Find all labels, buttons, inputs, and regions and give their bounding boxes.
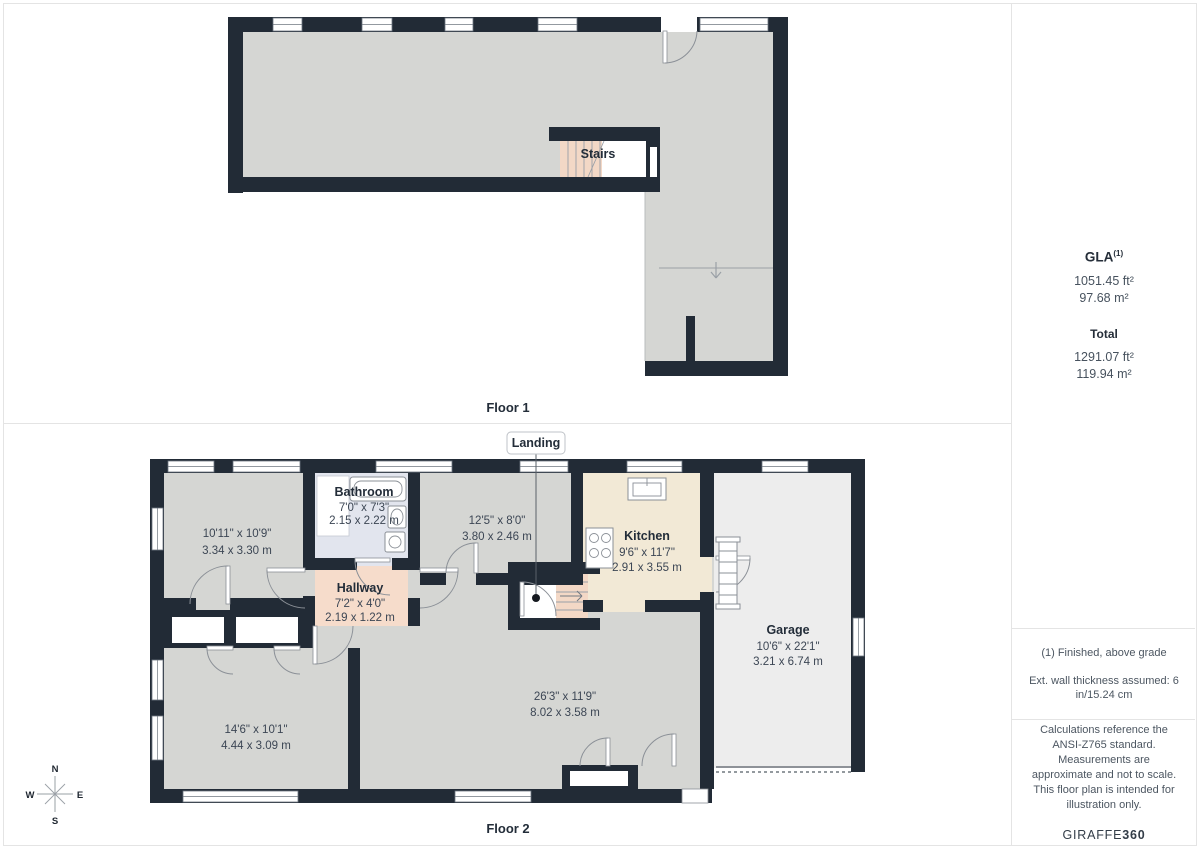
svg-text:Bathroom: Bathroom	[334, 485, 393, 499]
gla-footnote-marker: (1)	[1113, 249, 1123, 258]
floor2-title: Floor 2	[486, 821, 529, 836]
total-sqm-value: 119.94 m²	[1076, 366, 1131, 383]
floor2-plan: Landing 10'11" x 10'9" 3.34 x 3.30 m Bat…	[0, 423, 1012, 849]
floor1-plan: Stairs Floor 1	[0, 0, 1012, 423]
svg-text:4.44 x 3.09 m: 4.44 x 3.09 m	[221, 740, 291, 752]
chimney-niche	[570, 771, 628, 786]
disclaimer-text: Calculations reference the ANSI-Z765 sta…	[1028, 723, 1180, 813]
svg-text:W: W	[26, 790, 35, 801]
sidebar-footnotes: (1) Finished, above grade Ext. wall thic…	[1012, 629, 1196, 719]
gla-sqft-value: 1051.45 ft²	[1074, 273, 1134, 290]
wall-thickness-note: Ext. wall thickness assumed: 6 in/15.24 …	[1026, 674, 1182, 702]
svg-text:2.19 x 1.22 m: 2.19 x 1.22 m	[325, 612, 395, 624]
svg-text:12'5" x 8'0": 12'5" x 8'0"	[469, 515, 526, 527]
svg-text:N: N	[52, 764, 59, 775]
svg-text:10'11" x 10'9": 10'11" x 10'9"	[203, 528, 272, 540]
room-label-bathroom: Bathroom 7'0" x 7'3" 2.15 x 2.22 m	[329, 485, 399, 527]
svg-text:Kitchen: Kitchen	[624, 529, 670, 543]
gla-sqm-value: 97.68 m²	[1079, 290, 1128, 307]
svg-text:8.02 x 3.58 m: 8.02 x 3.58 m	[530, 707, 600, 719]
total-heading: Total	[1090, 327, 1118, 341]
giraffe360-logo: GIRAFFE360	[1062, 828, 1145, 842]
toilet-icon	[385, 532, 405, 552]
svg-text:10'6" x 22'1": 10'6" x 22'1"	[756, 641, 819, 653]
garage-radiator-icon	[716, 537, 740, 609]
kitchen-sink-icon	[628, 478, 666, 500]
svg-text:9'6" x 11'7": 9'6" x 11'7"	[619, 547, 675, 559]
footnote-finished-above-grade: (1) Finished, above grade	[1026, 646, 1182, 660]
svg-text:3.21 x 6.74 m: 3.21 x 6.74 m	[753, 656, 823, 668]
svg-text:3.80 x 2.46 m: 3.80 x 2.46 m	[462, 531, 532, 543]
compass-icon: N S W E	[26, 764, 84, 827]
svg-text:2.15 x 2.22 m: 2.15 x 2.22 m	[329, 515, 399, 527]
back-door	[682, 789, 708, 803]
svg-text:S: S	[52, 816, 58, 827]
svg-text:2.91 x 3.55 m: 2.91 x 3.55 m	[612, 562, 682, 574]
floor1-room-fills	[243, 32, 773, 361]
stove-icon	[586, 528, 613, 568]
gla-heading: GLA(1)	[1085, 249, 1123, 265]
svg-text:E: E	[77, 790, 83, 801]
stairs-label: Stairs	[581, 147, 616, 161]
total-sqft-value: 1291.07 ft²	[1074, 349, 1134, 366]
svg-text:3.34 x 3.30 m: 3.34 x 3.30 m	[202, 545, 272, 557]
floor1-title: Floor 1	[486, 400, 529, 415]
svg-text:Garage: Garage	[766, 623, 809, 637]
svg-text:14'6" x 10'1": 14'6" x 10'1"	[224, 724, 287, 736]
sidebar-disclaimer: Calculations reference the ANSI-Z765 sta…	[1012, 720, 1196, 845]
svg-text:Hallway: Hallway	[337, 581, 384, 595]
floorplan-page: { "panel_floor1": { "title": "Floor 1", …	[0, 0, 1200, 849]
sidebar-area-summary: GLA(1) 1051.45 ft² 97.68 m² Total 1291.0…	[1012, 4, 1196, 628]
landing-label: Landing	[512, 436, 561, 450]
svg-text:26'3" x 11'9": 26'3" x 11'9"	[534, 691, 596, 703]
svg-text:7'2" x 4'0": 7'2" x 4'0"	[335, 598, 385, 610]
svg-text:7'0" x 7'3": 7'0" x 7'3"	[339, 502, 389, 514]
